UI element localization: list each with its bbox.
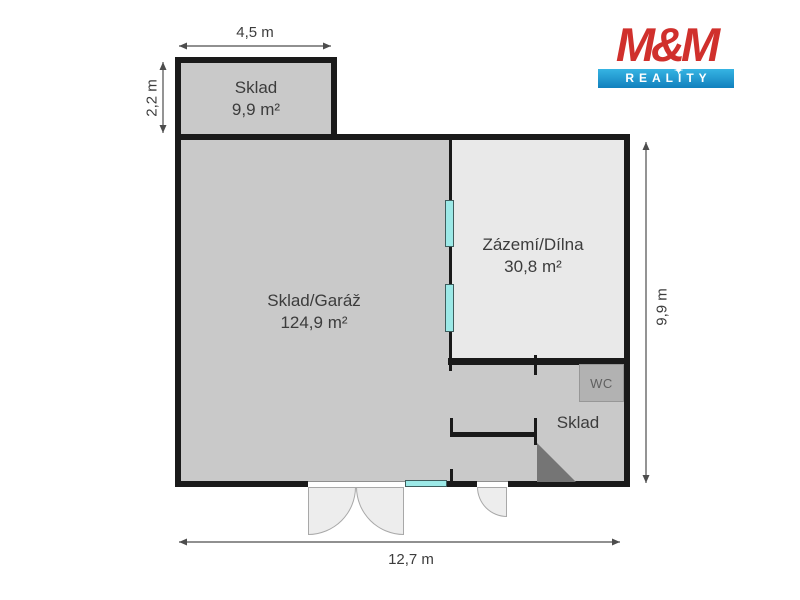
room-workshop-area: 30,8 m² [482, 256, 583, 278]
floor-plan-canvas: WC Sklad 9,9 m² Sklad/Garáž 124,9 m² Záz… [0, 0, 800, 600]
room-annex-area: 9,9 m² [232, 99, 280, 121]
door-jamb [450, 418, 453, 437]
window-interior-upper [445, 200, 454, 247]
logo-text: M&M ✦ [598, 22, 734, 68]
room-storage-name: Sklad [557, 412, 600, 434]
room-garage-area: 124,9 m² [267, 312, 361, 334]
dimension-top-label: 4,5 m [236, 24, 274, 41]
dimension-right-label: 9,9 m [654, 288, 671, 326]
room-workshop-name: Zázemí/Dílna [482, 234, 583, 256]
logo-mm-text: M&M [616, 18, 716, 71]
dimension-left-label: 2,2 m [144, 79, 161, 117]
star-icon: ✦ [674, 48, 683, 94]
room-annex-label: Sklad 9,9 m² [232, 77, 280, 121]
room-garage-name: Sklad/Garáž [267, 290, 361, 312]
door-jamb [534, 355, 537, 375]
wall-stub [450, 469, 453, 483]
brand-logo: M&M ✦ REALITY [598, 22, 734, 88]
wall-partition-storage [452, 432, 535, 437]
room-workshop-label: Zázemí/Dílna 30,8 m² [482, 234, 583, 278]
logo-tagline: REALITY [598, 69, 734, 88]
room-wc-label: WC [590, 376, 613, 391]
wall-garage-workshop [449, 140, 452, 371]
room-storage-label: Sklad [557, 412, 600, 434]
single-door-leaf [477, 487, 507, 517]
dimension-bottom-label: 12,7 m [388, 551, 434, 568]
window-bottom-wall [405, 480, 447, 487]
room-garage-label: Sklad/Garáž 124,9 m² [267, 290, 361, 334]
double-door-right-leaf [356, 487, 404, 535]
room-wc: WC [579, 364, 624, 402]
floor-plan-page: { "logo": { "name": "M&M", "tagline": "R… [0, 0, 800, 600]
door-jamb [534, 418, 537, 445]
double-door-left-leaf [308, 487, 356, 535]
room-annex-name: Sklad [232, 77, 280, 99]
window-interior-lower [445, 284, 454, 332]
